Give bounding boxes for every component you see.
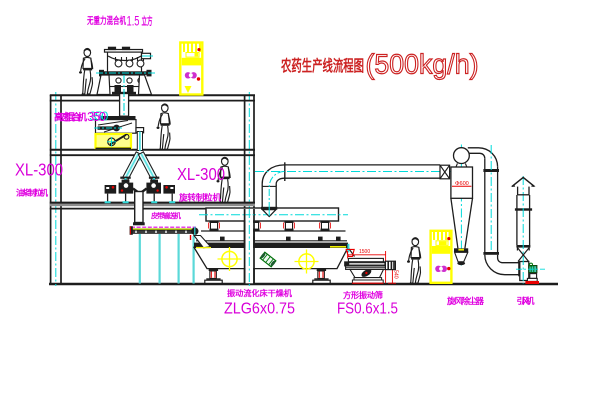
svg-text:旋风除尘器: 旋风除尘器 [446,295,484,306]
svg-text:(500kg/h): (500kg/h) [366,49,479,80]
svg-text:旋转制粒机: 旋转制粒机 [178,192,221,203]
svg-text:1500: 1500 [359,249,370,255]
svg-text:引风机: 引风机 [517,295,535,306]
svg-text:540: 540 [392,270,398,279]
svg-text:Φ600: Φ600 [455,181,469,187]
svg-text:350: 350 [87,109,106,124]
svg-text:立方: 立方 [142,15,153,28]
svg-text:方形振动筛: 方形振动筛 [343,290,383,300]
svg-text:高速混合机: 高速混合机 [54,112,87,124]
svg-text:FS0.6x1.5: FS0.6x1.5 [337,301,398,318]
svg-text:无重力混合机: 无重力混合机 [86,14,126,27]
svg-text:1.5: 1.5 [127,13,140,29]
svg-text:XL-300: XL-300 [15,160,63,180]
svg-text:皮带输送机: 皮带输送机 [150,211,181,220]
svg-text:油桨制粒机: 油桨制粒机 [16,188,48,198]
svg-text:振动流化床干燥机: 振动流化床干燥机 [227,288,293,298]
svg-text:XL-300: XL-300 [177,164,225,184]
svg-text:农药生产线流程图: 农药生产线流程图 [280,56,364,75]
svg-text:ZLG6x0.75: ZLG6x0.75 [224,301,295,318]
